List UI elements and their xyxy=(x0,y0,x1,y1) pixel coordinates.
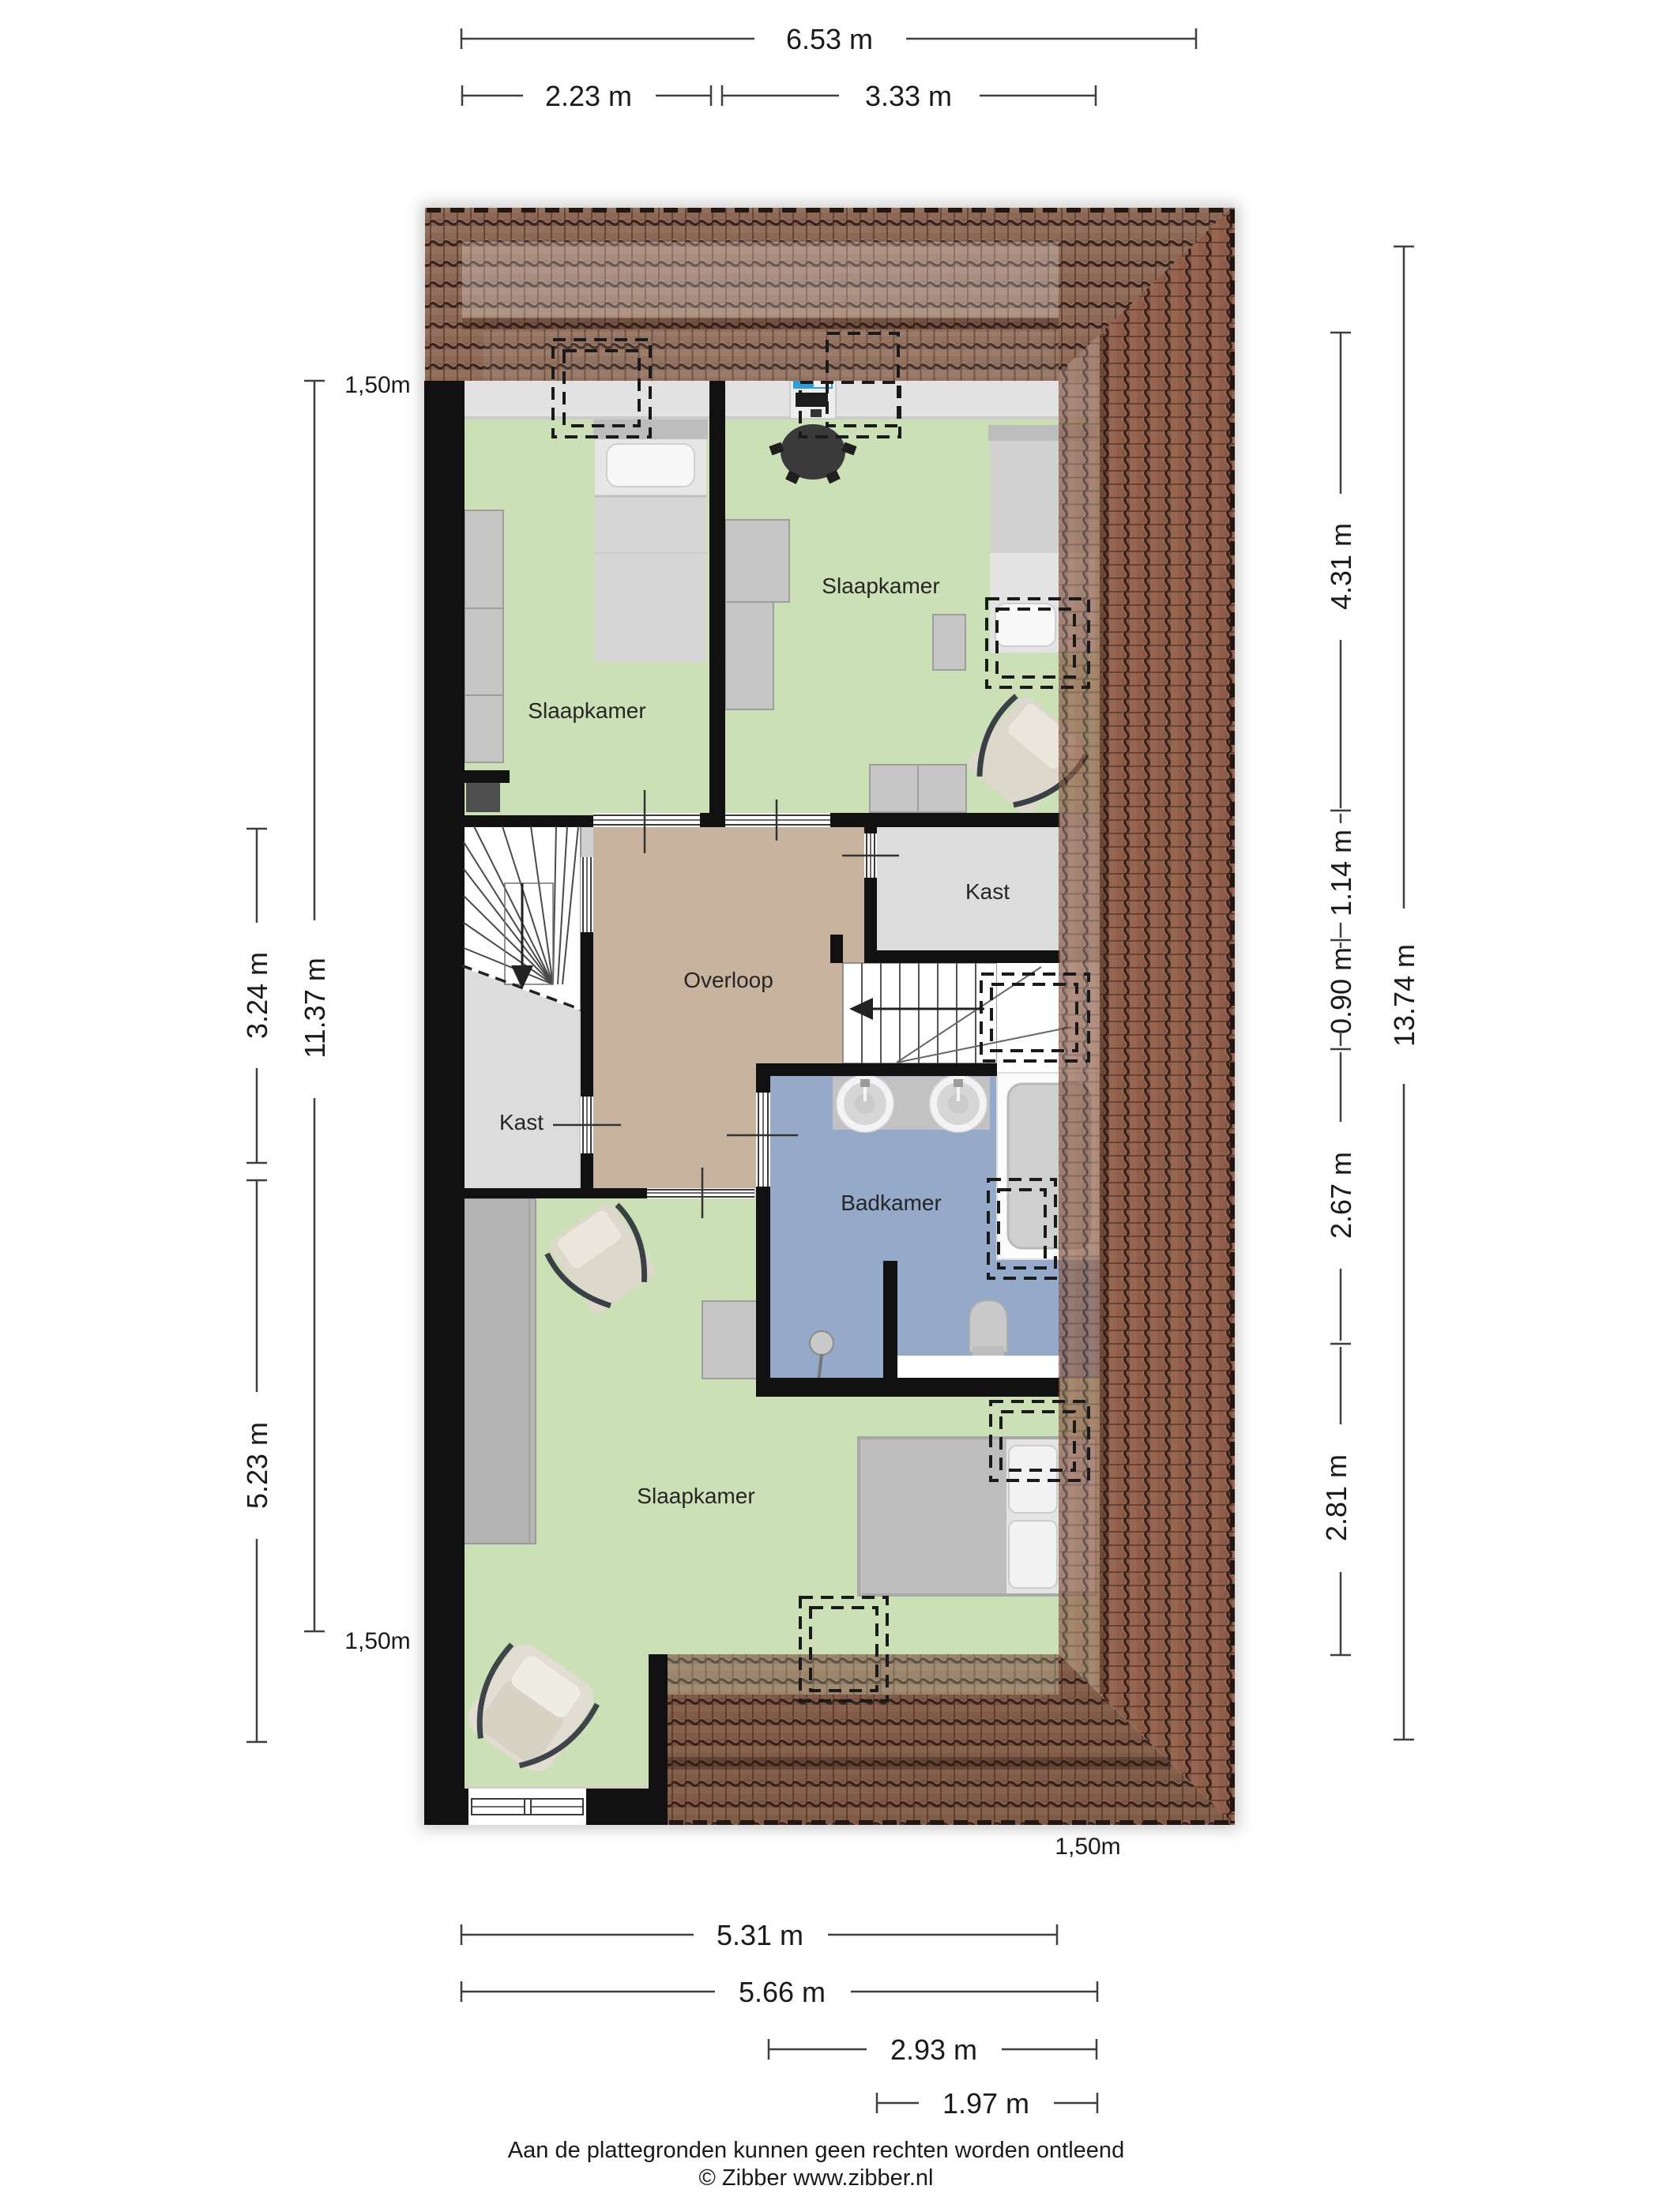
svg-text:Kast: Kast xyxy=(499,1110,544,1134)
svg-text:1,50m: 1,50m xyxy=(1055,1834,1120,1860)
svg-text:2.67 m: 2.67 m xyxy=(1325,1152,1357,1239)
svg-text:Slaapkamer: Slaapkamer xyxy=(637,1484,754,1508)
svg-text:11.37 m: 11.37 m xyxy=(299,957,331,1058)
svg-text:Badkamer: Badkamer xyxy=(841,1191,942,1215)
svg-text:5.23 m: 5.23 m xyxy=(241,1422,273,1509)
svg-text:1.97 m: 1.97 m xyxy=(942,2087,1029,2120)
svg-text:6.53 m: 6.53 m xyxy=(786,23,873,55)
svg-text:1,50m: 1,50m xyxy=(344,372,410,398)
svg-text:3.33 m: 3.33 m xyxy=(865,80,952,112)
svg-text:2.81 m: 2.81 m xyxy=(1320,1454,1352,1541)
svg-text:0.90 m: 0.90 m xyxy=(1325,947,1357,1034)
svg-text:Kast: Kast xyxy=(965,879,1010,904)
svg-text:5.31 m: 5.31 m xyxy=(717,1919,803,1951)
svg-text:Slaapkamer: Slaapkamer xyxy=(822,574,939,598)
svg-text:2.93 m: 2.93 m xyxy=(890,2033,977,2066)
svg-text:Aan de plattegronden kunnen ge: Aan de plattegronden kunnen geen rechten… xyxy=(508,2138,1124,2163)
svg-text:13.74 m: 13.74 m xyxy=(1388,944,1420,1047)
svg-text:2.23 m: 2.23 m xyxy=(545,80,632,112)
svg-text:Overloop: Overloop xyxy=(683,968,773,992)
svg-text:Slaapkamer: Slaapkamer xyxy=(528,698,645,723)
svg-text:© Zibber www.zibber.nl: © Zibber www.zibber.nl xyxy=(699,2165,934,2191)
svg-text:5.66 m: 5.66 m xyxy=(739,1976,826,2008)
svg-text:4.31 m: 4.31 m xyxy=(1325,523,1357,610)
svg-text:1.14 m: 1.14 m xyxy=(1325,829,1357,916)
svg-text:1,50m: 1,50m xyxy=(344,1628,410,1654)
svg-text:3.24 m: 3.24 m xyxy=(241,952,273,1039)
